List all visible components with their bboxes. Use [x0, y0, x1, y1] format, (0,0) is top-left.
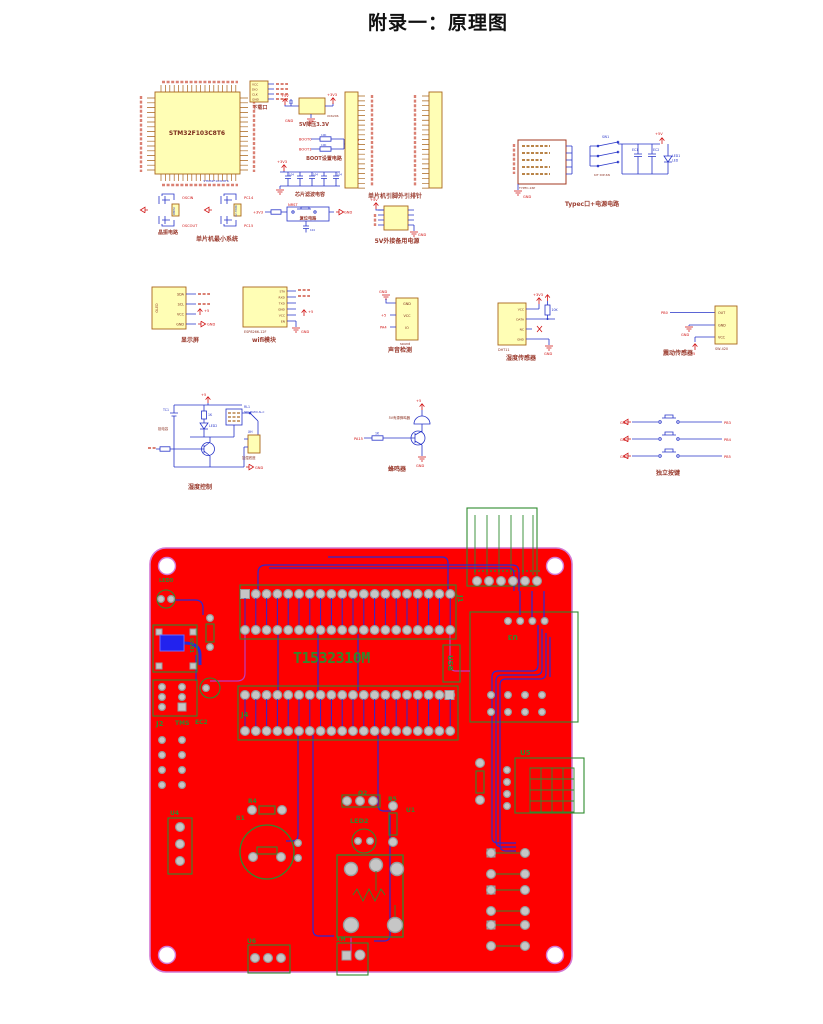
schematic-regulator-block: +5V +3V3 XC6206 GND 5V降压3.3V: [281, 90, 345, 128]
schematic-hsensor-block: VCC DATA NC GND +3V3 10K GND DHT11 湿度传感器: [493, 293, 569, 365]
reset-button: [292, 207, 316, 213]
pin-label: EN: [281, 320, 285, 324]
pin-label: OUT: [718, 311, 726, 315]
pin-label: VCC: [252, 83, 258, 87]
net-gnd: GND: [418, 233, 426, 237]
net-pa15: PA15: [354, 437, 363, 441]
silk-led0: LED0: [159, 578, 174, 584]
switch-part: KIT DIP-6N: [594, 173, 610, 177]
key-row: GND PB5: [620, 449, 731, 459]
buzzer-caption: 蜂鸣器: [388, 465, 407, 473]
schematic-display-block: OLED SDA SCL VCC GND +5 GND 显示屏: [146, 281, 220, 345]
schematic-headers-block: 单片机引脚外引排针: [340, 86, 452, 202]
net-3v3: +3V3: [327, 93, 337, 97]
pin-label: GND: [252, 98, 260, 102]
pin-label: RXD: [279, 296, 286, 300]
backup-caption: 5V外接备用电源: [375, 237, 420, 245]
schematic-typec-block: TYPEC-16P GND SW1 KIT DIP-6N +5V: [510, 130, 682, 210]
board-id-text: T1532310M: [293, 649, 370, 667]
pin-label: GND: [718, 324, 726, 328]
net-gnd: GND: [301, 330, 309, 334]
wifi-caption: wifi模块: [252, 336, 277, 344]
net-boot0: BOOT0: [299, 138, 312, 142]
net-5v: +5: [308, 310, 313, 314]
net-pb0: PB0: [661, 311, 669, 315]
page-title: 附录一：原理图: [368, 8, 508, 35]
crystal2-value: 32.768K: [234, 205, 238, 217]
key-row: GND PB4: [620, 432, 732, 442]
typec-caption: Typec口+电源电路: [565, 200, 620, 208]
schematic-filter-block: +3V3 104 104 104 芯片滤波电容: [276, 158, 346, 198]
silk-tms: TMS: [175, 720, 189, 727]
net-nrst: NRST: [288, 203, 298, 207]
pin-label: VCC: [177, 313, 185, 317]
mcu-chip: STM32F103C8T6 STM32F103C8T6: [141, 82, 254, 185]
net-5v: +5: [201, 393, 206, 397]
pin-label: DATA: [516, 318, 525, 322]
pin-label: GND: [278, 308, 286, 312]
power-switch: SW1 KIT DIP-6N: [590, 135, 660, 177]
tc1-ref: TC1: [162, 408, 169, 412]
switch-ref: SW1: [602, 135, 609, 139]
net-5v: +5V: [370, 198, 378, 202]
cap-value: 104: [313, 173, 318, 177]
key-row: GND PB3: [620, 415, 731, 425]
schematic-keys-block: GND PB3 GND PB4 GND PB5: [618, 408, 748, 480]
pin-label: SCL: [178, 303, 185, 307]
net-gnd: GND: [523, 195, 531, 199]
pin-label: DIO: [252, 88, 258, 92]
wifi-chip-name: ESP8266-12F: [244, 330, 267, 334]
vib-caption: 震动传感器: [662, 349, 694, 357]
net-oscout: OSCOUT: [182, 224, 198, 228]
relay-part: SRD-05VDC-SL-C: [244, 411, 265, 414]
silk-b1: B1: [236, 815, 245, 822]
regulator-chip-name: XC6206: [327, 114, 339, 118]
pin-label: VCC: [718, 336, 726, 340]
net-boot1: BOOT1: [299, 148, 312, 152]
mcu-caption: 单片机最小系统: [196, 235, 238, 243]
silk-u3: U3: [507, 633, 518, 641]
socket-ref: XH: [248, 430, 253, 434]
schematic-hctrl-block: +5 TC1 钽电容 1K LED2 RL1 SRD-05VDC-SL-C: [146, 393, 284, 495]
pin-label: GND: [517, 338, 525, 342]
net-5v: +5: [381, 314, 386, 318]
silk-xh: XH: [336, 936, 346, 943]
regulator-caption: 5V降压3.3V: [299, 121, 329, 128]
crystal-caption: 晶振电路: [158, 229, 179, 236]
schematic-sound-block: GND GND VCC IO +5 PA4 sound 声音检测: [378, 288, 440, 354]
schematic-vib-block: PB0 GND +5 OUT GND VCC SW-420 震动传感器: [655, 298, 749, 360]
net-5v: +5V: [655, 132, 663, 136]
typec-part-name: TYPEC-16P: [518, 186, 535, 190]
schematic-backup-block: +5V GND 5V外接备用电源: [368, 198, 428, 246]
net-gnd: GND: [344, 211, 352, 215]
hsensor-caption: 湿度传感器: [506, 354, 537, 362]
net-5v: +5V: [281, 94, 289, 98]
crystal-circuits: OSCIN OSCOUT 8MHz PC14 PC15 32.768K 晶振电路: [140, 194, 254, 236]
pin-label: GND: [403, 302, 411, 306]
hctrl-caption: 湿度控制: [188, 483, 212, 491]
net-gnd: GND: [544, 352, 552, 356]
silk-r4: R4: [248, 798, 257, 805]
silk-u6: U6: [247, 938, 256, 945]
pin-label: VCC: [403, 314, 411, 318]
resistor-value: 10K: [321, 143, 327, 147]
pin-label: VCC: [518, 308, 524, 312]
sound-caption: 声音检测: [387, 346, 412, 354]
schematic-reset-block: +3V3 NRST 复位电路 GND 104: [253, 200, 355, 238]
silk-q2: Q2: [358, 790, 367, 797]
net-3v3: +3V3: [533, 293, 543, 297]
r-value: 1K: [375, 432, 380, 436]
document-page: 附录一：原理图 STM32F103C8T6 STM32F103C8T6: [0, 0, 823, 1024]
keys-caption: 独立按键: [655, 469, 681, 477]
pin-label: IO: [405, 326, 409, 330]
net-3v3: +3V3: [253, 211, 263, 215]
resistor-value: 10K: [321, 133, 327, 137]
silk-j4: J4: [240, 711, 249, 719]
net-5v: +5: [204, 309, 209, 313]
net-key: PB5: [724, 455, 731, 459]
silk-led2: LED2: [350, 817, 369, 825]
pin-label: NC: [520, 328, 524, 332]
net-pc15: PC15: [244, 224, 253, 228]
pcb-layout: J1 U3 T1532310M USB: [148, 505, 590, 983]
pin-label: GND: [176, 323, 184, 327]
net-gnd: GND: [681, 333, 689, 337]
net-gnd: GND: [285, 119, 293, 123]
led2-ref: LED2: [209, 424, 217, 428]
cap2-ref: EC2: [653, 148, 659, 152]
sound-chip-name: sound: [400, 342, 410, 346]
r-value: 1K: [208, 413, 213, 417]
net-gnd: GND: [255, 466, 263, 470]
silk-j2: J2: [155, 720, 164, 728]
net-5v: +5: [416, 399, 421, 403]
pin-label: STA: [279, 290, 286, 294]
silk-u5: U5: [520, 749, 531, 757]
display-chip-name: OLED: [155, 303, 159, 313]
silk-usb1: USB1: [188, 638, 194, 653]
cap-value: 104: [289, 173, 294, 177]
buzzer-symbol: [414, 416, 430, 432]
silk-u4: U4: [170, 810, 179, 817]
cap-value: 104: [310, 228, 315, 232]
mcu-chip-name: STM32F103C8T6: [169, 130, 225, 137]
typec-connector: TYPEC-16P GND: [514, 140, 572, 199]
silk-u1: U1: [406, 807, 415, 814]
net-gnd: GND: [379, 290, 387, 294]
cap1-ref: EC1: [632, 148, 638, 152]
buzzer-part: 5V有源蜂鸣器: [389, 415, 411, 420]
net-oscin: OSCIN: [182, 196, 194, 200]
socket-name: 加湿底座: [242, 455, 256, 460]
relay-ref: RL1: [244, 405, 250, 409]
resistor-value: 10K: [552, 308, 559, 312]
pin-label: VCC: [279, 314, 285, 318]
filter-caps-leds: [622, 144, 672, 174]
pin-label: TXD: [278, 302, 286, 306]
vib-chip-name: SW-420: [715, 347, 728, 351]
pin-label: SDA: [177, 293, 185, 297]
silk-j1: J1: [456, 594, 464, 603]
net-key: PB4: [724, 438, 732, 442]
mcu-footprint-name: STM32F103C8T6: [203, 179, 228, 183]
download-caption: 下载口: [252, 104, 267, 111]
net-key: PB3: [724, 421, 731, 425]
net-3v3: +3V3: [277, 160, 287, 164]
schematic-wifi-block: STA RXD TXD GND VCC EN +5 GND ESP8266-12…: [238, 281, 324, 345]
silk-usb: USB: [446, 655, 454, 671]
led1-sub: LED: [672, 159, 679, 163]
silk-ec2: EC2: [195, 719, 208, 726]
led1-ref: LED1: [672, 154, 680, 158]
net-gnd: GND: [416, 464, 424, 468]
display-caption: 显示屏: [181, 336, 199, 344]
tc1-name: 钽电容: [158, 426, 169, 431]
net-gnd: GND: [207, 323, 215, 327]
reset-caption: 复位电路: [299, 215, 318, 222]
filter-caption: 芯片滤波电容: [295, 191, 325, 198]
hsensor-chip-name: DHT11: [498, 348, 510, 352]
net-pa4: PA4: [380, 326, 387, 330]
schematic-buzzer-block: +5 5V有源蜂鸣器 PA15 1K GND 蜂鸣器: [352, 398, 450, 478]
crystal1-value: 8MHz: [172, 207, 176, 215]
